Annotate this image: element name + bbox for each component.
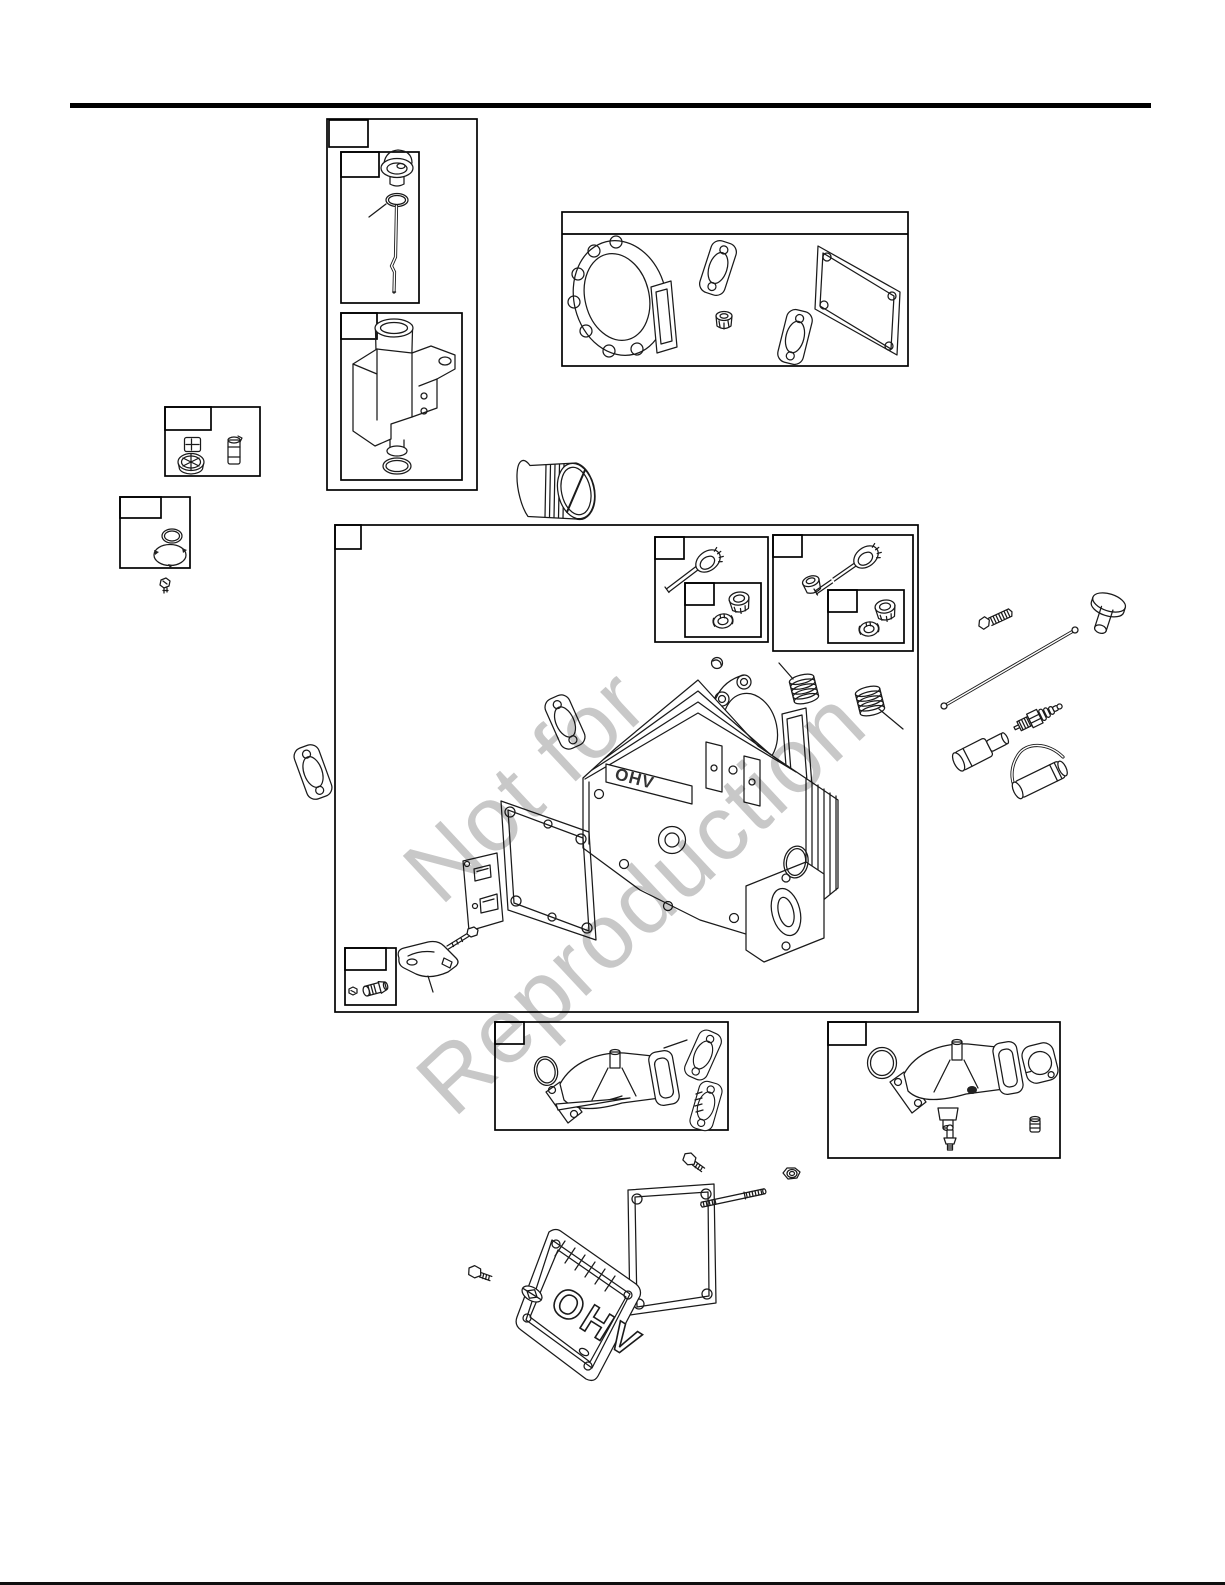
manifold-o-ring — [868, 1048, 897, 1079]
mounting-screw — [160, 578, 170, 593]
exhaust-port-gasket — [697, 238, 738, 297]
engine-dipstick — [369, 150, 413, 292]
manifold-o-ring — [532, 1054, 561, 1087]
valve-cover: OHV — [516, 1230, 650, 1381]
spark-plug — [1011, 699, 1065, 735]
push-rod — [941, 627, 1078, 709]
intake-valve — [665, 544, 726, 593]
callout-box — [329, 120, 368, 147]
manifold-gasket-upper — [682, 1027, 724, 1082]
leader-line — [428, 976, 433, 992]
callout-box — [655, 537, 684, 559]
callout-box — [828, 590, 857, 612]
exhaust-port-gasket — [542, 692, 588, 752]
welch-plug — [712, 658, 723, 669]
callout-box — [335, 525, 361, 549]
fill-tube-box — [341, 313, 462, 480]
callout-box — [773, 535, 802, 557]
flange-nut — [783, 1168, 800, 1179]
pipe-cap — [1030, 1117, 1040, 1133]
rocker-stud — [447, 927, 478, 949]
intake-port-gasket — [776, 308, 814, 367]
exhaust-valve — [814, 540, 884, 595]
dipstick-box — [341, 150, 419, 303]
cap-kit-box — [165, 407, 260, 476]
callout-box — [495, 1022, 524, 1044]
callout-box — [685, 583, 714, 605]
callout-box — [828, 1022, 866, 1045]
oil-filter — [517, 460, 599, 522]
spark-plug-boot — [950, 728, 1012, 773]
flange-gasket — [1020, 1041, 1060, 1086]
valve-cover-gasket — [628, 1184, 716, 1315]
exhaust-manifold-box — [828, 1022, 1060, 1158]
valve-tappet — [1083, 589, 1128, 638]
leader-line — [369, 204, 386, 217]
dipstick-group-box — [327, 119, 477, 490]
leader-line — [664, 1040, 687, 1048]
exhaust-manifold — [890, 1040, 1024, 1131]
head-gasket — [501, 801, 596, 940]
manifold-gasket-lower — [688, 1079, 724, 1132]
valve-cover-group: OHV — [467, 1151, 800, 1381]
callout-box — [165, 407, 211, 430]
set-screw — [362, 980, 389, 998]
valve-spring — [854, 684, 885, 718]
breather-plate — [463, 853, 503, 931]
cover-bolt — [467, 1265, 493, 1282]
sump-gasket — [154, 545, 187, 569]
valve-cover-gasket — [815, 246, 900, 355]
callout-box — [120, 497, 161, 518]
callout-box — [341, 152, 379, 177]
callout-box — [341, 313, 377, 339]
cover-bolt — [681, 1151, 708, 1173]
spark-plug-wrench — [1010, 745, 1070, 800]
manual-page: Not for Reproduction — [0, 0, 1225, 1585]
oil-fill-cap — [178, 454, 204, 475]
valve-keepers — [709, 591, 752, 630]
valve-spring — [788, 672, 819, 706]
set-screw-kit-box — [345, 948, 396, 1005]
valve-stem-seal — [716, 312, 732, 330]
exhaust-valve-box — [773, 535, 913, 651]
sump-gasket-box — [120, 497, 190, 568]
keeper-box — [685, 583, 761, 637]
intake-valve-box — [655, 537, 768, 642]
drain-fitting — [944, 1125, 956, 1150]
intake-manifold-box — [495, 1022, 728, 1133]
callout-box — [345, 948, 386, 970]
filter-cartridge — [228, 436, 242, 464]
head-bolt — [976, 605, 1013, 630]
head-gasket — [561, 231, 678, 366]
oil-fill-tube — [353, 319, 455, 474]
parts-diagram: OHV — [0, 0, 1225, 1585]
cylinder-head-assembly-box: OHV — [335, 525, 918, 1012]
intake-manifold — [546, 1049, 681, 1123]
jam-nut — [349, 987, 357, 995]
intake-gasket-left — [292, 742, 335, 802]
breather-element — [185, 438, 201, 452]
gasket-set-box — [561, 212, 908, 366]
valve-keepers — [855, 599, 898, 638]
